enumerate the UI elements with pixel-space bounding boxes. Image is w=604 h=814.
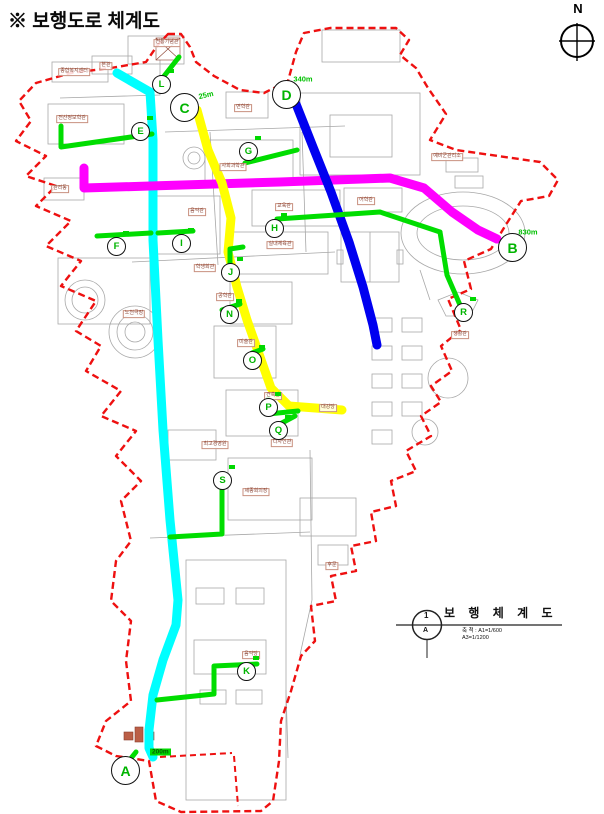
route-point-B: B	[498, 233, 527, 262]
access-point-letter: I	[180, 239, 183, 249]
distance-tick	[259, 345, 265, 349]
building-label: 면학관	[234, 104, 252, 112]
access-point-letter: H	[271, 224, 278, 234]
access-point-L: L	[152, 75, 171, 94]
route-point-C: C	[170, 93, 199, 122]
sheet-number-top: 1	[424, 611, 428, 620]
access-point-letter: G	[245, 147, 252, 157]
access-point-R: R	[454, 303, 473, 322]
spiral-ramp	[183, 147, 205, 169]
title-block-scale: 축 척 : A1=1/600 A3=1/1200	[462, 628, 502, 642]
building-label: 교육관	[275, 203, 293, 211]
building-label: 최고경영원	[201, 441, 228, 449]
campus-map	[0, 0, 604, 814]
access-point-O: O	[243, 351, 262, 370]
distance-tick	[253, 656, 259, 660]
distance-tick	[470, 297, 476, 301]
access-point-letter: P	[265, 403, 271, 413]
route-point-letter: A	[120, 764, 130, 778]
building-label: 사회과학관	[219, 163, 246, 171]
building-label: 미술관	[237, 339, 255, 347]
blue-route	[296, 104, 377, 345]
access-point-N: N	[220, 305, 239, 324]
scale-line-1: 축 척 : A1=1/600	[462, 628, 502, 635]
access-point-S: S	[213, 471, 232, 490]
building-label: 노천극장	[123, 310, 145, 318]
route-distance-label: 200m	[150, 749, 171, 756]
access-point-letter: L	[159, 80, 165, 90]
access-point-G: G	[239, 142, 258, 161]
distance-tick	[168, 69, 174, 73]
building-label: 대강당	[319, 404, 337, 412]
building-label: 종합복지센터	[58, 68, 90, 76]
route-point-A: A	[111, 756, 140, 785]
building-label: 디자인관	[271, 439, 293, 447]
building-label: 음악관	[188, 208, 206, 216]
building-label: 후문	[325, 562, 338, 570]
access-point-Q: Q	[269, 421, 288, 440]
access-point-I: I	[172, 234, 191, 253]
access-point-letter: E	[137, 127, 143, 137]
distance-tick	[285, 415, 291, 419]
distance-tick	[255, 136, 261, 140]
building-label: 학생회관	[194, 264, 216, 272]
building-label: 세종회의장	[242, 488, 269, 496]
access-point-letter: S	[219, 476, 225, 486]
route-point-D: D	[272, 80, 301, 109]
building-label: 실내체육관	[266, 241, 293, 249]
building-label: 전산정보학관	[56, 115, 88, 123]
access-point-letter: R	[460, 308, 467, 318]
route-point-letter: D	[281, 88, 291, 102]
distance-tick	[229, 465, 235, 469]
access-point-F: F	[107, 237, 126, 256]
access-point-J: J	[221, 263, 240, 282]
building-label: 생활관	[451, 331, 469, 339]
distance-tick	[123, 231, 129, 235]
route-point-letter: B	[507, 241, 517, 255]
distance-tick	[281, 213, 287, 217]
distance-tick	[237, 257, 243, 261]
access-point-letter: J	[228, 268, 233, 278]
building-label: 예비군관리소	[431, 153, 463, 161]
distance-tick	[275, 392, 281, 396]
access-point-K: K	[237, 662, 256, 681]
title-block-title: 보 행 체 계 도	[444, 604, 558, 621]
access-point-letter: Q	[275, 426, 282, 436]
access-point-letter: K	[243, 667, 250, 677]
sheet-number-bottom: A	[423, 627, 428, 634]
route-point-letter: C	[179, 101, 189, 115]
access-point-H: H	[265, 219, 284, 238]
distance-tick	[236, 299, 242, 303]
access-point-E: E	[131, 122, 150, 141]
scale-line-2: A3=1/1200	[462, 635, 502, 642]
building-label: 본관	[99, 62, 112, 70]
access-point-P: P	[259, 398, 278, 417]
access-point-letter: F	[114, 242, 120, 252]
boundary-inner-dashes	[160, 753, 238, 806]
access-point-letter: O	[249, 356, 256, 366]
building-label: 공학관	[216, 293, 234, 301]
distance-tick	[147, 116, 153, 120]
route-distance-label: 830m	[518, 228, 537, 237]
route-distance-label: 340m	[293, 75, 312, 84]
building-label: 어학관	[357, 197, 375, 205]
distance-tick	[188, 228, 194, 232]
drawing-canvas: ※ 보행도로 체계도 N	[0, 0, 604, 814]
access-point-letter: N	[226, 310, 233, 320]
building-label: 전통기념관	[153, 39, 180, 47]
building-label: 관리동	[51, 185, 69, 193]
